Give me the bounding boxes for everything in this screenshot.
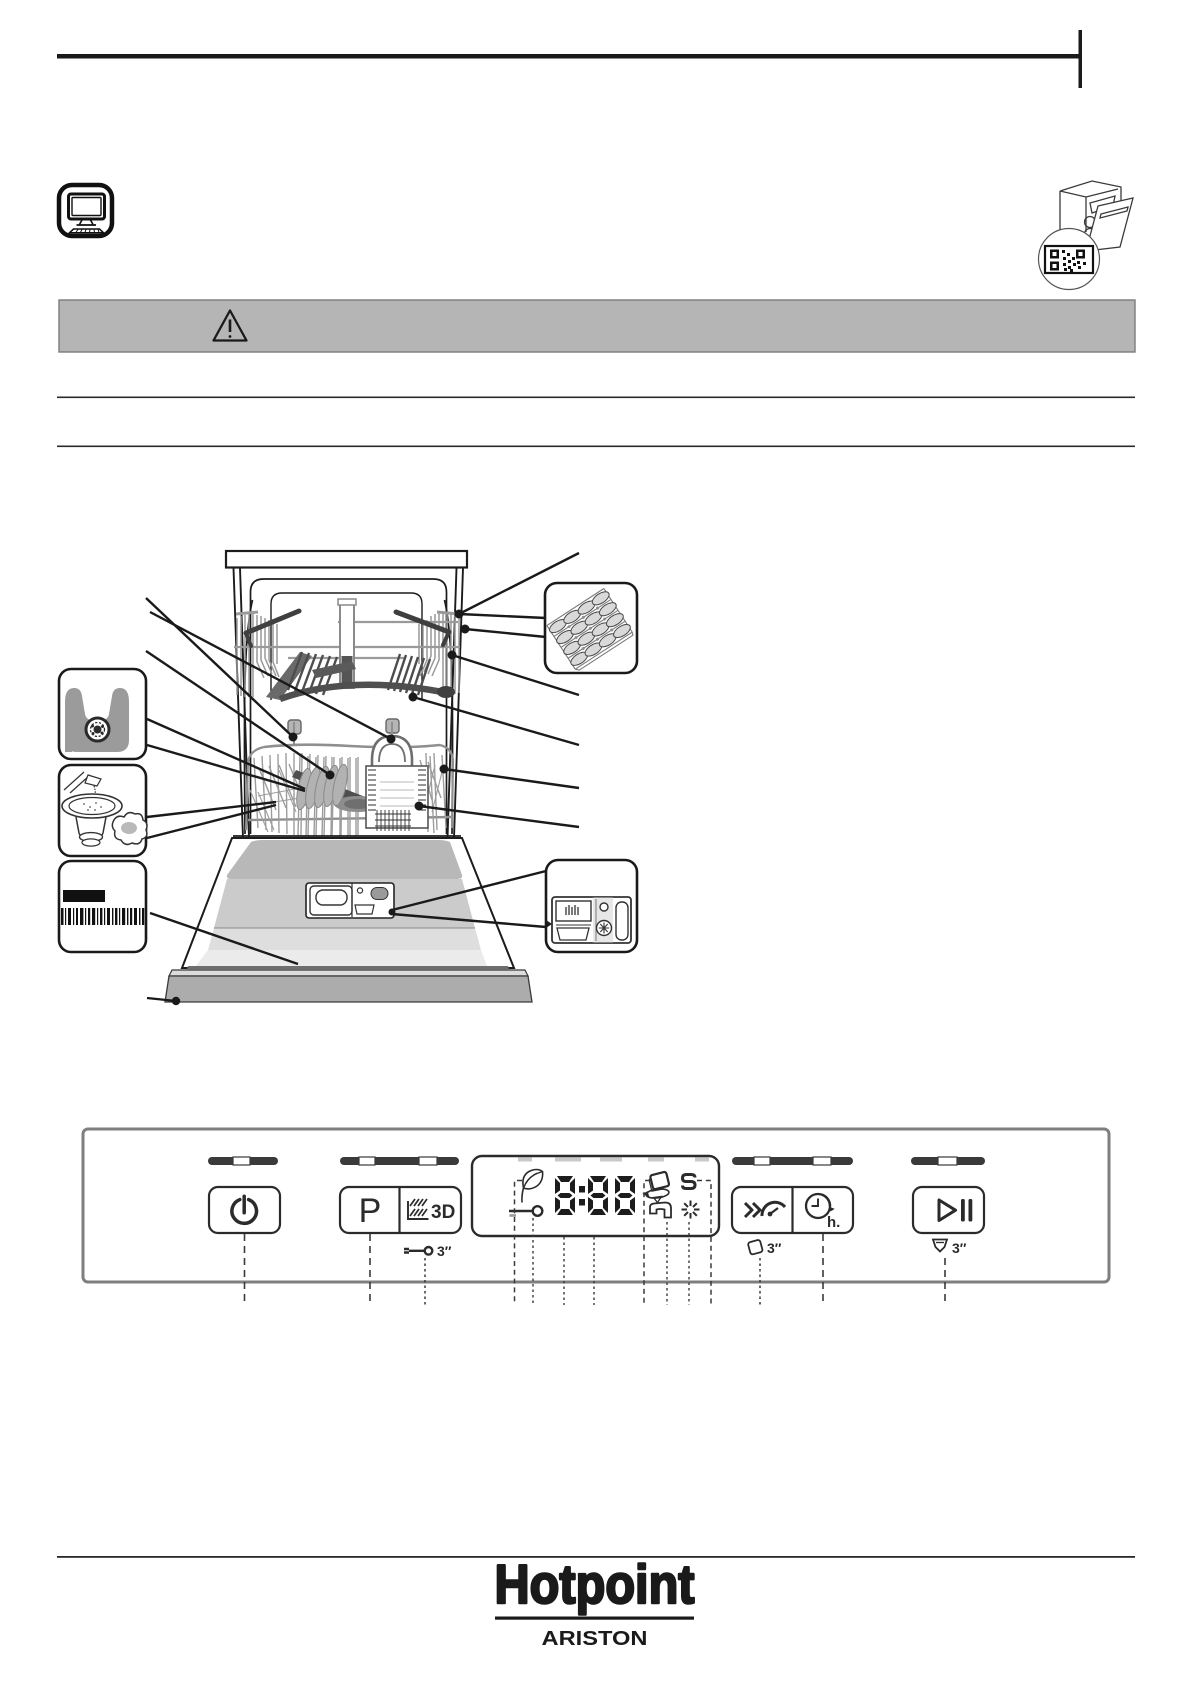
svg-text:Hotpoint: Hotpoint [495, 1553, 695, 1615]
svg-text:ARISTON: ARISTON [542, 1628, 648, 1650]
svg-text:3″: 3″ [437, 1243, 452, 1259]
svg-text:h.: h. [827, 1214, 840, 1231]
svg-text:3″: 3″ [767, 1240, 782, 1256]
svg-text:3″: 3″ [952, 1240, 967, 1256]
svg-text:3D: 3D [431, 1202, 455, 1223]
svg-text:P: P [359, 1192, 382, 1230]
